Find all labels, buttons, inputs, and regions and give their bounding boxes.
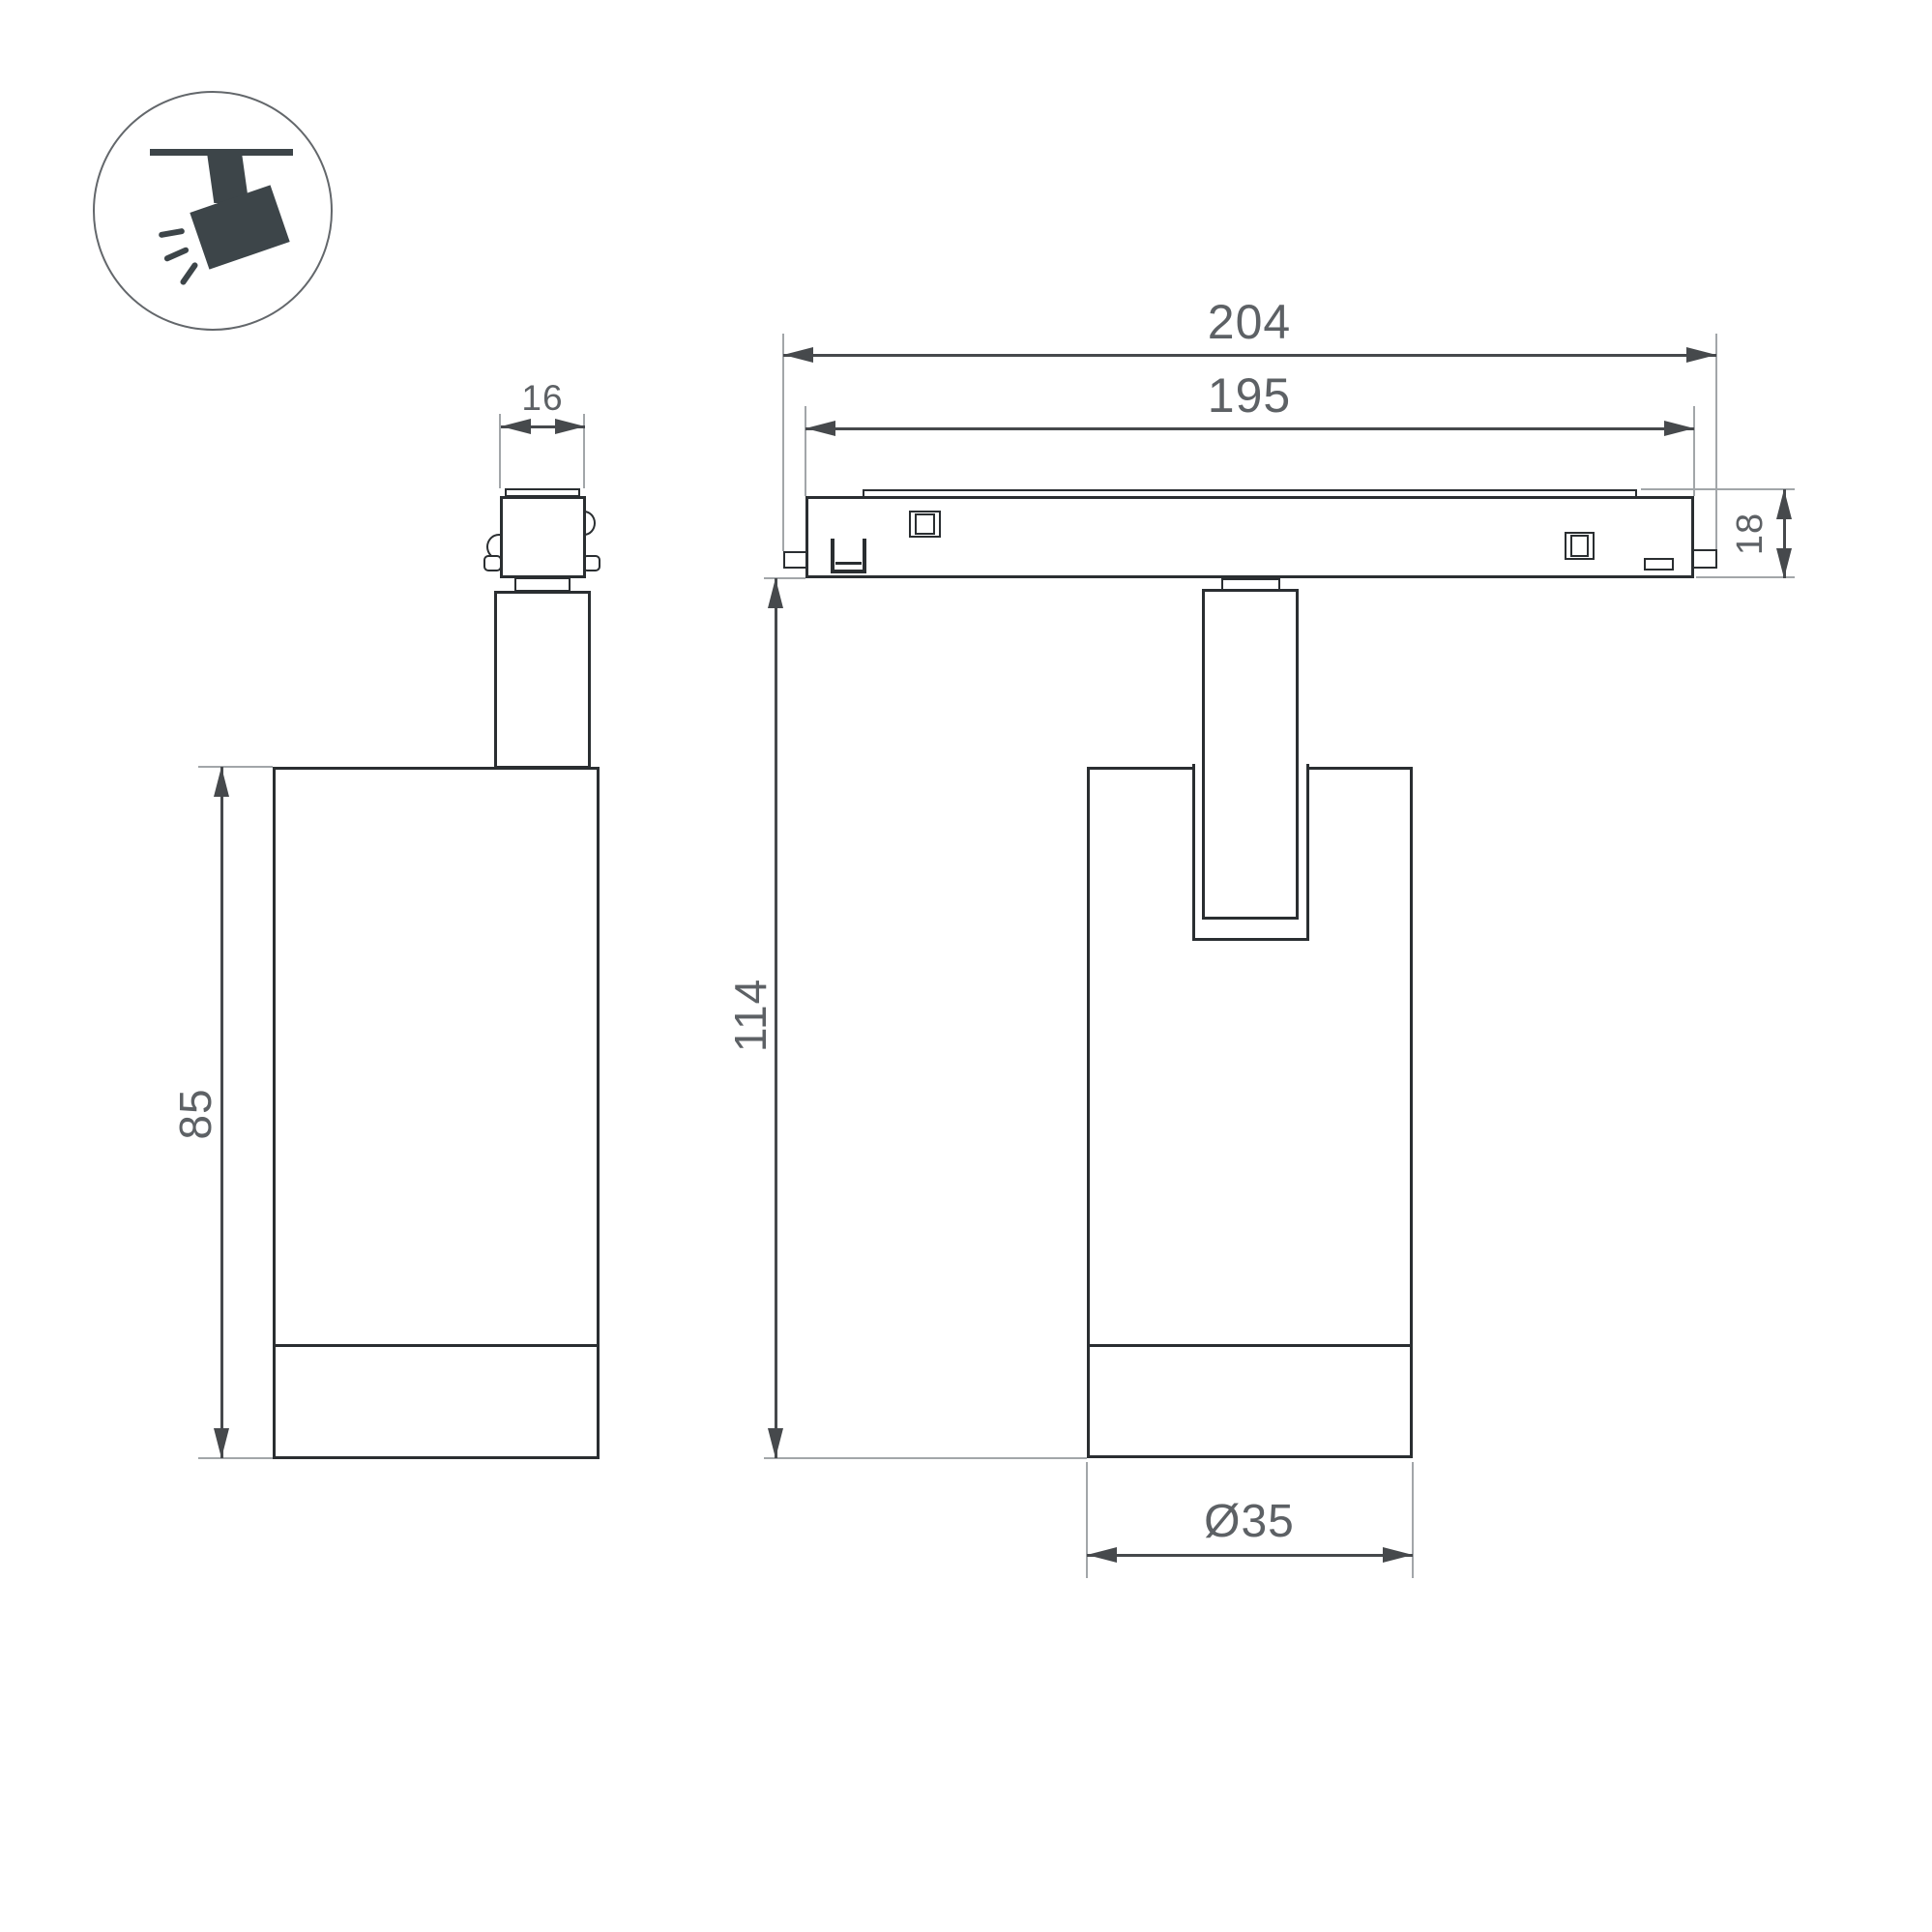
dim-label-overall-height: 114 [727,948,774,1083]
extension-line [1641,488,1795,490]
extension-line [198,1457,273,1459]
arrowhead-right [555,419,585,434]
arrowhead-right [1664,421,1694,436]
dim-line-204 [783,354,1716,357]
extension-line [782,334,784,551]
arrowhead-up [214,767,229,797]
body-divider-line [276,1344,597,1347]
body-divider-line-front [1090,1344,1410,1347]
arrowhead-down [1776,548,1792,578]
arrowhead-down [768,1428,783,1458]
dim-label-adapter-width: 16 [494,377,591,420]
dim-label-body-height: 85 [172,1054,219,1174]
track-clip-right-inner [1570,535,1589,557]
dim-label-track-length: 195 [1153,369,1346,422]
lamp-body-side [273,767,600,1459]
track-end-tab-right [1692,549,1717,569]
extension-line [1693,406,1695,496]
dim-label-body-diameter: Ø35 [1153,1497,1346,1547]
dim-label-overall-length: 204 [1153,296,1346,348]
extension-line [805,406,806,496]
arrowhead-up [1776,489,1792,519]
extension-line [764,1457,1087,1459]
arrowhead-left [501,419,531,434]
track-u-clip [831,539,866,573]
swivel-stem [494,591,591,769]
dim-line-195 [805,427,1694,430]
dim-label-track-height: 18 [1731,493,1770,574]
dim-line-85 [220,767,223,1458]
adapter-neck [514,577,571,592]
dim-line-d35 [1087,1554,1413,1557]
technical-drawing-spotlight: 16 85 20 [0,0,1932,1932]
arrowhead-right [1383,1547,1413,1563]
track-adapter [500,496,586,578]
extension-line [198,766,273,768]
arrowhead-left [1087,1547,1117,1563]
arrowhead-right [1686,347,1716,363]
arrowhead-left [805,421,835,436]
extension-line [1715,334,1717,549]
track-u-clip-shelf [835,562,862,565]
arrowhead-up [768,578,783,608]
arrowhead-left [783,347,813,363]
track-clip-left-inner [915,513,935,535]
swivel-stem-front [1202,589,1299,920]
track-slot-plate [1644,558,1674,571]
arrowhead-down [214,1428,229,1458]
